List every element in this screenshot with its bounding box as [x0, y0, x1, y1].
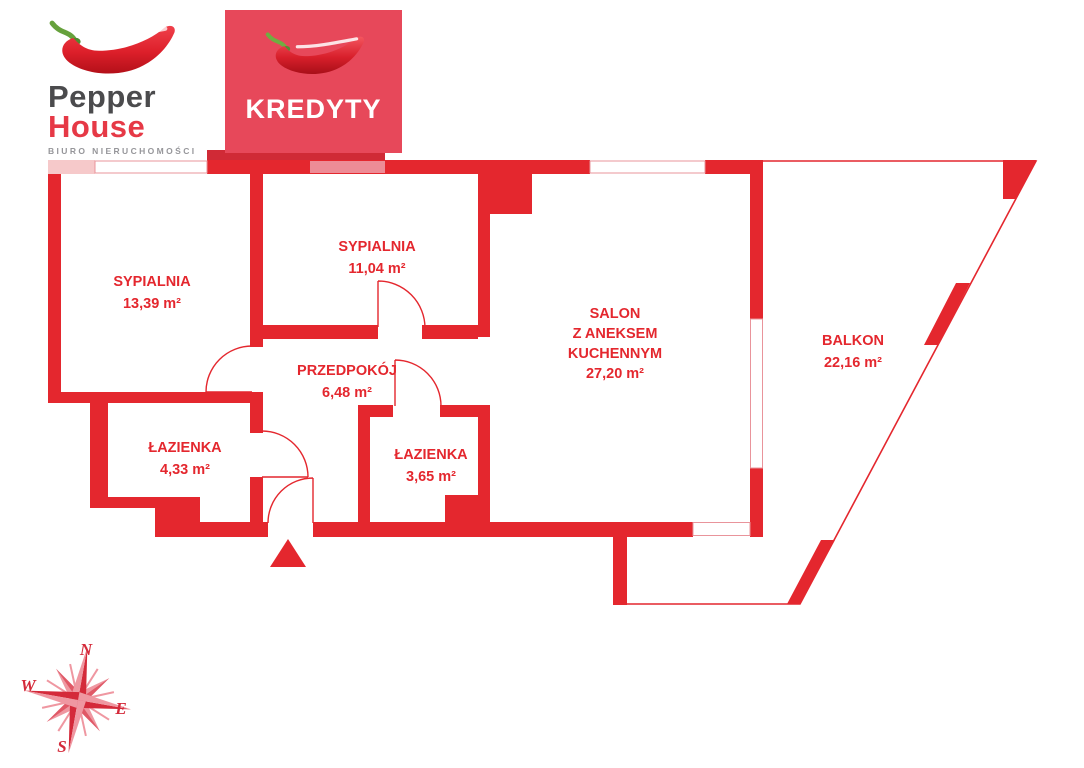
window-top-salon: [590, 161, 705, 173]
logo-word-pepper: Pepper: [48, 82, 188, 112]
railing-segment-middle: [924, 283, 970, 345]
logo-subtitle: BIURO NIERUCHOMOŚCI: [48, 146, 188, 156]
room-name: SYPIALNIA: [113, 271, 190, 293]
entrance-arrow: [270, 539, 306, 567]
compass-letter-s: S: [57, 737, 66, 757]
room-area: 27,20 m²: [568, 364, 662, 384]
room-area: 6,48 m²: [297, 382, 397, 404]
pepper-icon: [248, 28, 380, 80]
balcony-door-window: [751, 319, 763, 468]
room-area: 3,65 m²: [394, 466, 467, 488]
pepper-house-logo: Pepper House BIURO NIERUCHOMOŚCI: [48, 14, 188, 156]
door-entrance: [268, 478, 313, 523]
balcony-outline: [627, 160, 1036, 604]
compass-letter-n: N: [80, 640, 92, 660]
compass-letter-w: W: [20, 676, 35, 696]
window-bottom-salon: [693, 523, 750, 536]
room-name: BALKON: [822, 330, 884, 352]
room-name: SALON: [568, 304, 662, 324]
room-name: SYPIALNIA: [338, 236, 415, 258]
room-label-sypialnia-1: SYPIALNIA 13,39 m²: [113, 271, 190, 315]
banner-label: KREDYTY: [245, 94, 381, 125]
compass-rose-icon: [6, 628, 150, 768]
room-label-lazienka-2: ŁAZIENKA 3,65 m²: [394, 444, 467, 488]
floor-plan-page: Pepper House BIURO NIERUCHOMOŚCI KREDYTY…: [0, 0, 1084, 768]
room-label-przedpokoj: PRZEDPOKÓJ 6,48 m²: [297, 360, 397, 404]
window-pink-block: [48, 160, 95, 174]
room-label-salon: SALON Z ANEKSEM KUCHENNYM 27,20 m²: [568, 304, 662, 384]
window-top-mid-pink: [310, 161, 385, 173]
room-name: ŁAZIENKA: [148, 437, 221, 459]
room-area: 11,04 m²: [338, 258, 415, 280]
door-bedroom2: [378, 281, 425, 328]
room-area: 22,16 m²: [822, 352, 884, 374]
logo-word-house: House: [48, 112, 188, 142]
room-area: 13,39 m²: [113, 293, 190, 315]
room-name: PRZEDPOKÓJ: [297, 360, 397, 382]
room-label-lazienka-1: ŁAZIENKA 4,33 m²: [148, 437, 221, 481]
room-label-balkon: BALKON 22,16 m²: [822, 330, 884, 374]
door-bathroom1: [262, 431, 308, 477]
door-bedroom1: [206, 346, 252, 392]
compass-letter-e: E: [115, 699, 126, 719]
kredyty-banner: KREDYTY: [225, 10, 402, 153]
pepper-icon: [42, 14, 180, 82]
window-top-left: [95, 161, 207, 173]
room-area: 4,33 m²: [148, 459, 221, 481]
room-label-sypialnia-2: SYPIALNIA 11,04 m²: [338, 236, 415, 280]
room-name: Z ANEKSEM: [568, 324, 662, 344]
room-name: KUCHENNYM: [568, 344, 662, 364]
room-name: ŁAZIENKA: [394, 444, 467, 466]
door-bathroom2: [395, 360, 441, 406]
railing-segment-bottom: [787, 540, 835, 604]
